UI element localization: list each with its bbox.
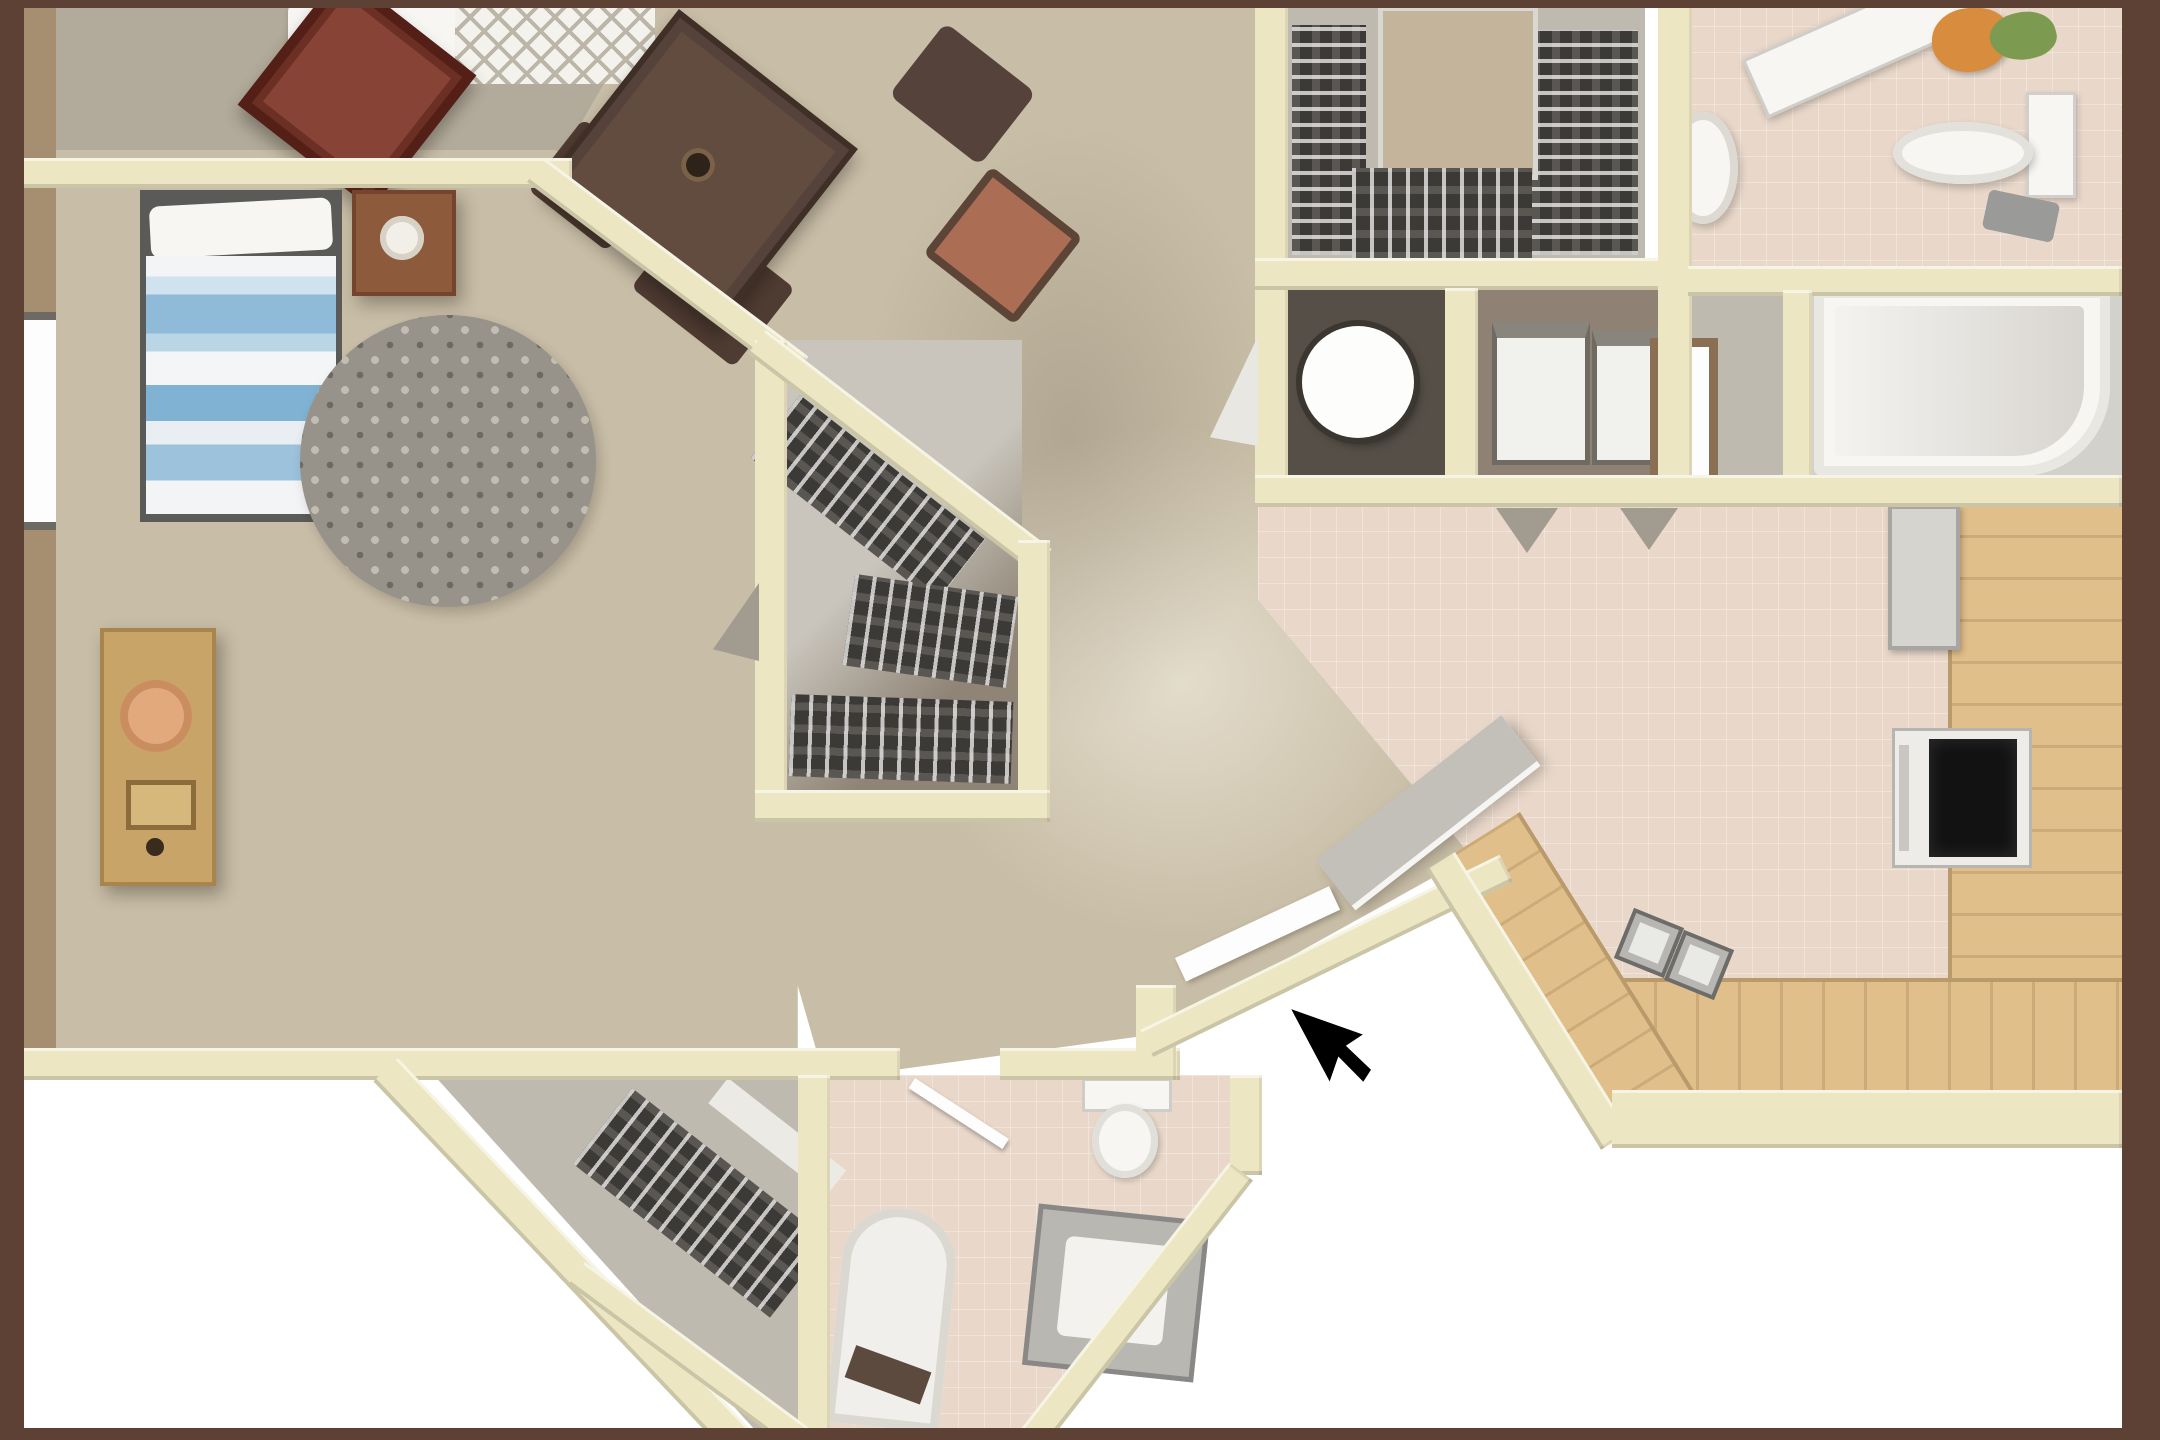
wall-kitchen-top bbox=[1255, 475, 2122, 507]
wall-bath-bottom-left bbox=[798, 1075, 830, 1440]
bed-pillow bbox=[149, 197, 333, 258]
refrigerator bbox=[1888, 505, 1960, 650]
stove bbox=[1892, 728, 2032, 868]
kitchen-counter-bottom bbox=[1612, 978, 2122, 1090]
nightstand-lamp bbox=[380, 216, 424, 260]
wall-kitchen-bottom bbox=[1612, 1090, 2122, 1148]
bathtub-bottom-faucet bbox=[845, 1345, 932, 1404]
desk-lamp bbox=[120, 680, 192, 752]
sink-basin-2-inner bbox=[1678, 944, 1720, 986]
dresser-desk bbox=[100, 628, 216, 886]
wall-bath-bottom-right bbox=[1230, 1075, 1262, 1175]
toilet-top-bowl bbox=[1893, 122, 2033, 184]
wardrobe-clothes-right bbox=[1532, 30, 1638, 255]
desk-drawer bbox=[126, 780, 196, 830]
wall-bath-mid bbox=[1688, 266, 2122, 296]
desk-knob bbox=[146, 838, 164, 856]
nightstand bbox=[352, 190, 456, 296]
stove-handle bbox=[1899, 745, 1909, 851]
toilet-bottom-bowl bbox=[1092, 1104, 1158, 1178]
sink-basin-1-inner bbox=[1628, 922, 1670, 964]
wall-bedroom-bottom bbox=[24, 1048, 900, 1080]
washing-machine-round bbox=[1302, 326, 1414, 438]
wardrobe-shelf bbox=[1378, 6, 1538, 180]
wall-den-bedroom bbox=[24, 158, 572, 188]
wardrobe-clothes-bottom bbox=[1352, 168, 1532, 260]
stove-cooktop-black bbox=[1929, 739, 2017, 857]
floorplan-canvas bbox=[0, 0, 2160, 1440]
bathtub-top-right bbox=[1814, 288, 2110, 476]
round-speckled-rug bbox=[300, 315, 596, 607]
wall-laundry-bath bbox=[1658, 0, 1692, 507]
wall-pentagon-left bbox=[755, 340, 787, 822]
closet-clothes-rack-bottom bbox=[789, 694, 1014, 784]
wall-laundry-mid bbox=[1445, 288, 1478, 480]
window-left-wall bbox=[22, 312, 56, 530]
wall-wc-tub bbox=[1783, 290, 1812, 480]
bathtub-basin bbox=[1834, 306, 2084, 456]
patterned-rug bbox=[455, 0, 655, 84]
washer-square-1 bbox=[1492, 322, 1590, 465]
toilet-top-tank bbox=[2026, 92, 2076, 198]
wall-closet-laundry bbox=[1255, 258, 1692, 290]
wall-laundry-left bbox=[1255, 0, 1288, 507]
wall-pentagon-bottom bbox=[755, 790, 1050, 822]
frame-bottom bbox=[0, 1428, 2160, 1440]
wall-pentagon-right bbox=[1018, 540, 1050, 802]
frame-right bbox=[2122, 0, 2160, 1440]
frame-top bbox=[0, 0, 2160, 8]
frame-left bbox=[0, 0, 24, 1440]
